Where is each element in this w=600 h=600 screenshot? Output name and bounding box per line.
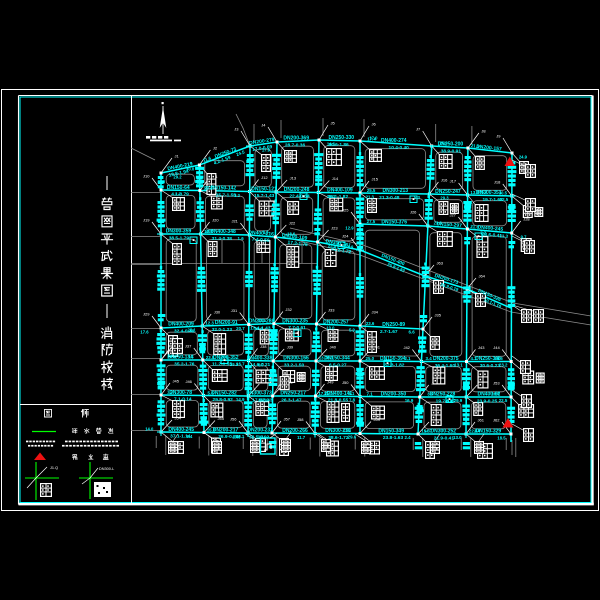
svg-text:27.9: 27.9 (167, 354, 176, 359)
svg-text:6.5-0.27: 6.5-0.27 (329, 362, 347, 368)
svg-text:1.6: 1.6 (238, 236, 245, 241)
svg-text:J17: J17 (450, 179, 457, 184)
svg-text:2.2: 2.2 (175, 192, 181, 197)
svg-text:20.0: 20.0 (440, 140, 449, 145)
svg-text:DN150-349: DN150-349 (378, 428, 404, 434)
svg-text:DN150-376: DN150-376 (381, 220, 407, 226)
svg-text:J13: J13 (290, 176, 297, 181)
svg-text:38.5-1.79: 38.5-1.79 (169, 235, 190, 241)
svg-text:8.0: 8.0 (327, 355, 333, 360)
svg-text:DN150-142: DN150-142 (211, 186, 237, 192)
svg-text:DN200-248: DN200-248 (284, 187, 310, 193)
svg-text:J22: J22 (289, 221, 296, 226)
svg-text:6.7: 6.7 (258, 363, 264, 368)
svg-text:18.6: 18.6 (287, 231, 296, 236)
svg-text:8.9: 8.9 (427, 391, 433, 396)
svg-text:12.5: 12.5 (500, 197, 509, 202)
svg-text:J58: J58 (297, 417, 304, 422)
svg-text:36.4-1.60: 36.4-1.60 (435, 363, 456, 369)
svg-text:14.6: 14.6 (327, 142, 336, 147)
svg-text:DN300-213: DN300-213 (383, 188, 409, 194)
svg-text:7.8: 7.8 (349, 398, 356, 403)
svg-text:DN250-247: DN250-247 (435, 189, 461, 195)
svg-text:DN250-217: DN250-217 (280, 391, 306, 397)
svg-text:30.0: 30.0 (186, 167, 195, 172)
svg-text:33.2-1.50: 33.2-1.50 (284, 362, 305, 368)
svg-text:DN400-274: DN400-274 (381, 138, 407, 144)
svg-text:5.6: 5.6 (207, 390, 214, 395)
svg-text:23.6: 23.6 (366, 321, 375, 326)
svg-text:J32: J32 (285, 307, 292, 312)
svg-text:J53: J53 (493, 381, 500, 386)
svg-text:30.5: 30.5 (499, 190, 508, 195)
svg-text:18.5: 18.5 (497, 436, 506, 441)
svg-text:11.3: 11.3 (499, 233, 508, 239)
svg-text:J45: J45 (173, 379, 180, 384)
svg-text:3.3: 3.3 (263, 229, 269, 234)
svg-text:J64: J64 (479, 274, 486, 279)
svg-text:29.2: 29.2 (173, 175, 182, 180)
svg-text:2.7-1.67: 2.7-1.67 (380, 329, 398, 335)
svg-text:9.7: 9.7 (521, 235, 527, 240)
svg-text:16.5: 16.5 (495, 356, 504, 361)
svg-text:17.9: 17.9 (262, 148, 271, 153)
svg-text:21.3: 21.3 (366, 195, 375, 200)
svg-text:J10: J10 (143, 174, 150, 179)
svg-text:21.6: 21.6 (470, 224, 480, 230)
svg-text:DN200-375: DN200-375 (433, 356, 459, 362)
svg-text:25.0: 25.0 (366, 356, 375, 361)
svg-text:17.6: 17.6 (140, 330, 149, 335)
svg-text:38.9-0.91: 38.9-0.91 (441, 149, 462, 155)
svg-text:DN300-359: DN300-359 (166, 229, 192, 235)
svg-text:20.7: 20.7 (236, 326, 245, 331)
svg-text:13.3: 13.3 (255, 326, 264, 331)
svg-text:DN150-282: DN150-282 (211, 390, 237, 396)
svg-text:J40: J40 (330, 345, 337, 350)
svg-text:32.0-1.23: 32.0-1.23 (212, 327, 233, 333)
svg-text:13.4: 13.4 (343, 428, 352, 433)
svg-text:12.6: 12.6 (258, 318, 267, 323)
svg-text:12.3: 12.3 (205, 321, 214, 326)
svg-text:J44: J44 (493, 345, 500, 350)
svg-text:DN200-369: DN200-369 (283, 136, 309, 142)
svg-text:DN400-245: DN400-245 (168, 427, 194, 433)
svg-text:J20: J20 (212, 218, 219, 223)
svg-text:DN250-228: DN250-228 (430, 392, 456, 398)
svg-text:13.1: 13.1 (454, 363, 463, 368)
svg-text:23.2: 23.2 (499, 363, 508, 368)
svg-text:28.1: 28.1 (188, 328, 197, 333)
svg-text:38.6-1.72: 38.6-1.72 (328, 435, 349, 441)
svg-text:DN200-217: DN200-217 (213, 427, 239, 433)
svg-text:23.8: 23.8 (206, 355, 215, 360)
svg-text:25.1: 25.1 (324, 390, 333, 395)
svg-text:15.7-1.43: 15.7-1.43 (254, 193, 275, 199)
svg-text:DN400-348: DN400-348 (210, 229, 236, 235)
svg-text:6.9: 6.9 (347, 244, 353, 249)
svg-text:J42: J42 (403, 345, 410, 350)
svg-text:23.3: 23.3 (434, 220, 443, 225)
svg-text:J26: J26 (410, 210, 417, 215)
svg-text:23.8-1.63: 23.8-1.63 (383, 435, 404, 441)
svg-text:29.8-0.92: 29.8-0.92 (213, 397, 234, 403)
svg-text:29.0: 29.0 (230, 362, 239, 367)
svg-text:22.5: 22.5 (499, 398, 508, 403)
svg-text:10.0: 10.0 (326, 326, 335, 331)
svg-text:29.3: 29.3 (440, 196, 449, 201)
svg-text:J63: J63 (437, 261, 444, 266)
svg-text:2.1: 2.1 (405, 356, 411, 361)
svg-text:29.9: 29.9 (454, 398, 463, 403)
svg-text:J57: J57 (284, 417, 291, 422)
svg-text:J50: J50 (342, 380, 349, 385)
svg-text:J14: J14 (332, 176, 339, 181)
svg-text:DN200-91: DN200-91 (215, 320, 238, 326)
svg-text:3.4: 3.4 (426, 356, 433, 361)
svg-text:DN300-166: DN300-166 (283, 356, 309, 362)
svg-text:J1.Q: J1.Q (50, 466, 58, 470)
svg-text:DN300-235: DN300-235 (282, 318, 308, 324)
svg-text:J19: J19 (143, 218, 150, 223)
svg-text:27.0: 27.0 (260, 398, 269, 403)
svg-text:6.6: 6.6 (409, 330, 416, 335)
svg-text:24.9: 24.9 (519, 155, 528, 160)
svg-text:2.4: 2.4 (474, 428, 480, 433)
svg-text:13.0: 13.0 (453, 435, 462, 440)
svg-text:DN400-109: DN400-109 (327, 187, 353, 193)
svg-text:14.7: 14.7 (424, 428, 433, 433)
svg-text:12.9: 12.9 (345, 226, 354, 231)
svg-text:30.6-0.23: 30.6-0.23 (480, 363, 501, 369)
svg-text:10.8: 10.8 (232, 435, 241, 440)
svg-text:35.2-1.76: 35.2-1.76 (174, 361, 195, 367)
svg-text:15.3: 15.3 (327, 194, 336, 199)
svg-text:27.5: 27.5 (367, 219, 376, 224)
svg-text:11.7: 11.7 (297, 435, 306, 440)
svg-text:J16: J16 (441, 178, 448, 183)
svg-text:13.8: 13.8 (470, 190, 479, 195)
svg-text:J31: J31 (231, 308, 238, 313)
svg-text:14.0: 14.0 (145, 426, 154, 431)
svg-text:29.6: 29.6 (348, 435, 357, 440)
svg-text:DN300-L: DN300-L (99, 467, 114, 471)
svg-text:26.8: 26.8 (491, 391, 500, 396)
svg-text:17.0: 17.0 (369, 135, 378, 140)
svg-text:J18: J18 (494, 180, 501, 185)
svg-text:2.4: 2.4 (404, 435, 411, 440)
svg-text:5.9: 5.9 (349, 328, 355, 333)
svg-text:26.3-1.47: 26.3-1.47 (281, 397, 302, 403)
svg-text:J61: J61 (478, 418, 485, 423)
svg-text:16.9: 16.9 (405, 398, 414, 403)
svg-text:3.5: 3.5 (188, 354, 194, 359)
svg-text:DN200-350: DN200-350 (381, 391, 407, 397)
svg-text:DN250-330: DN250-330 (329, 135, 355, 141)
svg-text:27.2: 27.2 (205, 185, 214, 190)
svg-text:3.2: 3.2 (234, 193, 240, 198)
svg-text:10.4-0.40: 10.4-0.40 (389, 145, 410, 151)
svg-text:21.8-0.55: 21.8-0.55 (328, 398, 349, 404)
svg-text:J39: J39 (287, 345, 294, 350)
svg-text:J62: J62 (493, 418, 500, 423)
svg-text:DN250-89: DN250-89 (382, 322, 405, 328)
svg-text:21.3: 21.3 (471, 143, 481, 149)
svg-text:28.7-0.36: 28.7-0.36 (285, 143, 306, 149)
svg-text:23.9-0.25: 23.9-0.25 (477, 398, 498, 404)
svg-text:26.2: 26.2 (479, 189, 488, 194)
svg-text:25.5: 25.5 (367, 188, 376, 193)
svg-text:DN300-252: DN300-252 (431, 429, 457, 435)
svg-text:21.3-0.48: 21.3-0.48 (379, 195, 400, 201)
svg-text:J30: J30 (214, 310, 221, 315)
svg-text:21.9-0.41: 21.9-0.41 (434, 435, 455, 441)
svg-text:J43: J43 (478, 345, 485, 350)
svg-text:J21: J21 (231, 219, 238, 224)
svg-text:DN200-266: DN200-266 (282, 428, 308, 434)
svg-text:5.1: 5.1 (348, 391, 354, 396)
svg-text:DN150-64: DN150-64 (167, 185, 190, 191)
svg-text:22.9: 22.9 (328, 244, 337, 249)
svg-text:J46: J46 (185, 379, 192, 384)
svg-text:31.4-0.38: 31.4-0.38 (212, 236, 233, 242)
svg-text:J12: J12 (261, 175, 268, 180)
svg-text:1.2: 1.2 (167, 389, 173, 394)
svg-text:J15: J15 (372, 177, 379, 182)
svg-text:J24: J24 (342, 234, 349, 239)
svg-text:J23: J23 (331, 226, 338, 231)
svg-text:20.6: 20.6 (206, 228, 215, 233)
svg-text:J35: J35 (435, 313, 442, 318)
svg-text:7.1: 7.1 (367, 391, 374, 396)
svg-text:J37: J37 (185, 344, 192, 349)
svg-text:DN200-352: DN200-352 (213, 355, 239, 361)
svg-text:J56: J56 (230, 417, 237, 422)
svg-text:4.2: 4.2 (471, 356, 478, 361)
svg-text:15.0: 15.0 (207, 427, 216, 432)
svg-text:J34: J34 (372, 310, 379, 315)
svg-text:14.9: 14.9 (236, 397, 245, 402)
svg-text:J38: J38 (260, 344, 267, 349)
svg-text:7.1-0.14: 7.1-0.14 (174, 397, 192, 403)
svg-text:J29: J29 (143, 312, 150, 317)
svg-text:6.4: 6.4 (186, 434, 192, 439)
svg-text:J33: J33 (328, 308, 335, 313)
